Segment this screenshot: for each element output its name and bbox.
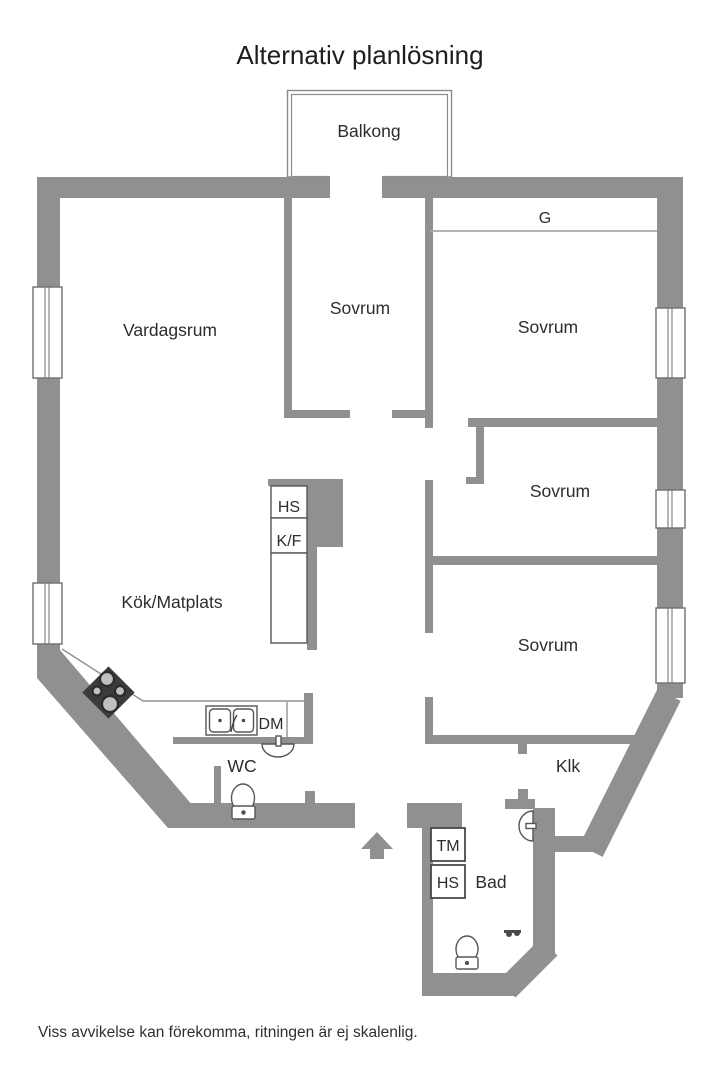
room-label-bad: Bad [475, 872, 506, 892]
label-dishwasher-dm: DM [259, 716, 284, 733]
room-label-klk: Klk [556, 756, 581, 776]
page-title: Alternativ planlösning [236, 40, 483, 70]
room-label-sovrum-bottom-right: Sovrum [518, 635, 578, 655]
label-tall-cabinet-hs: HS [278, 499, 300, 516]
window [656, 308, 685, 378]
room-label-wc: WC [227, 756, 256, 776]
cabinet-box [271, 553, 307, 643]
bath-washbasin-icon [519, 811, 536, 841]
sink-icon [206, 706, 257, 735]
room-label-sovrum-top-right: Sovrum [518, 317, 578, 337]
wc-toilet-icon [232, 784, 256, 819]
room-label-vardagsrum: Vardagsrum [123, 320, 217, 340]
room-label-balkong: Balkong [337, 121, 400, 141]
window [656, 608, 685, 683]
entrance-arrow-icon [361, 832, 393, 859]
label-bath-cabinet-hs: HS [437, 875, 459, 892]
footer-note: Viss avvikelse kan förekomma, ritningen … [38, 1024, 418, 1041]
label-washing-machine-tm: TM [436, 838, 459, 855]
room-label-kok-matplats: Kök/Matplats [121, 592, 222, 612]
balcony-door-opening [330, 175, 382, 200]
label-fridge-freezer-kf: K/F [277, 533, 302, 550]
label-wardrobe-g: G [539, 210, 551, 227]
floor-plan-svg: Alternativ planlösning [0, 0, 720, 1080]
shower-mixer-icon [504, 930, 521, 937]
window [656, 490, 685, 528]
window [33, 583, 62, 644]
floor-plan-page: Alternativ planlösning [0, 0, 720, 1080]
room-label-sovrum-middle: Sovrum [330, 298, 390, 318]
window [33, 287, 62, 378]
room-label-sovrum-mid-right: Sovrum [530, 481, 590, 501]
bath-toilet-icon [456, 936, 478, 969]
